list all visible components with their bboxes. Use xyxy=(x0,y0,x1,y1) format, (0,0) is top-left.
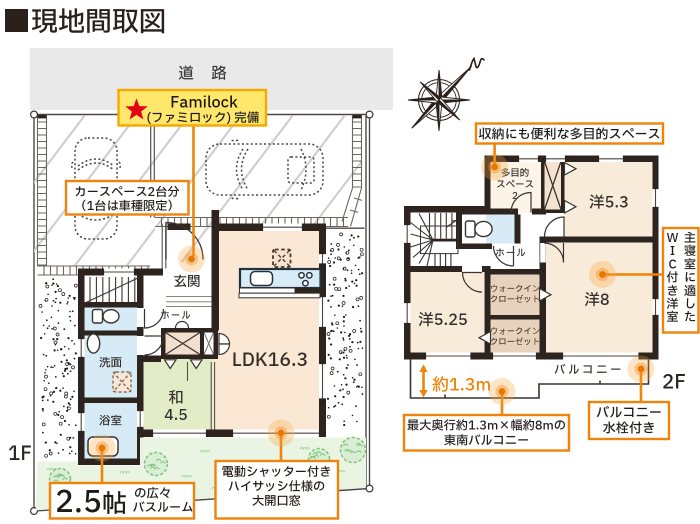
svg-text:浴室: 浴室 xyxy=(99,414,122,431)
svg-text:洋5.25: 洋5.25 xyxy=(418,309,467,332)
svg-text:路: 路 xyxy=(211,63,227,86)
svg-text:ホール: ホール xyxy=(160,310,192,324)
svg-text:洗面: 洗面 xyxy=(99,356,122,373)
svg-text:現地間取図: 現地間取図 xyxy=(31,2,166,43)
svg-text:バスルーム: バスルーム xyxy=(133,500,194,518)
svg-text:道: 道 xyxy=(178,63,194,86)
svg-text:2: 2 xyxy=(512,190,518,204)
svg-text:約1.3m: 約1.3m xyxy=(432,374,491,399)
svg-text:玄関: 玄関 xyxy=(174,272,201,292)
svg-text:クローゼット: クローゼット xyxy=(490,293,540,306)
svg-text:(ファミロック) 完備: (ファミロック) 完備 xyxy=(147,109,260,128)
svg-text:バルコニー: バルコニー xyxy=(554,363,624,380)
svg-text:収納にも便利な多目的スペース: 収納にも便利な多目的スペース xyxy=(478,125,660,145)
svg-text:洋8: 洋8 xyxy=(584,289,609,312)
svg-text:水栓付き: 水栓付き xyxy=(603,419,656,439)
svg-text:室: 室 xyxy=(666,309,678,327)
svg-text:洋5.3: 洋5.3 xyxy=(589,192,629,215)
svg-text:た: た xyxy=(684,309,696,327)
svg-text:クローゼット: クローゼット xyxy=(490,336,540,349)
svg-text:4.5: 4.5 xyxy=(164,404,187,427)
svg-text:LDK16.3: LDK16.3 xyxy=(232,347,308,375)
svg-text:大開口窓: 大開口窓 xyxy=(252,493,301,511)
svg-text:ホール: ホール xyxy=(495,247,527,261)
svg-text:2.5帖: 2.5帖 xyxy=(55,481,127,524)
svg-text:（1台は車種限定）: （1台は車種限定） xyxy=(74,198,179,216)
svg-text:1F: 1F xyxy=(8,439,32,469)
svg-text:2F: 2F xyxy=(662,368,686,398)
svg-text:東南バルコニー: 東南バルコニー xyxy=(444,433,529,451)
